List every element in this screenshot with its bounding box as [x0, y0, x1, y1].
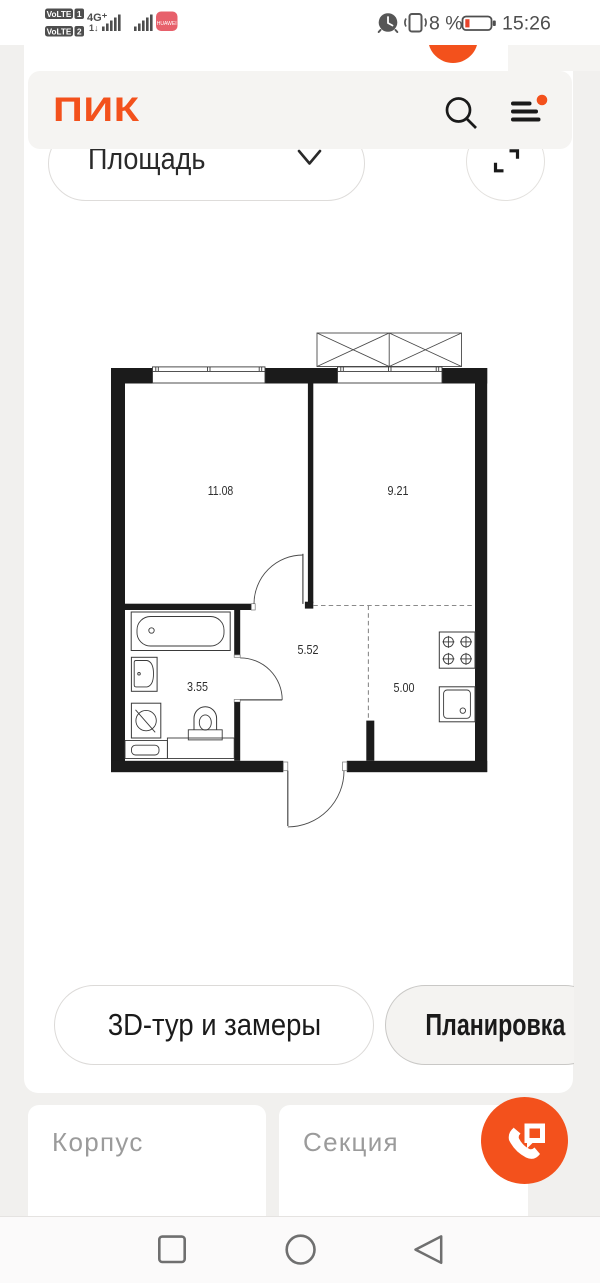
- svg-text:5.52: 5.52: [298, 643, 319, 657]
- svg-text:9.21: 9.21: [388, 484, 409, 498]
- svg-text:3.55: 3.55: [187, 680, 208, 694]
- svg-text:11.08: 11.08: [208, 484, 234, 498]
- svg-text:5.00: 5.00: [394, 681, 415, 695]
